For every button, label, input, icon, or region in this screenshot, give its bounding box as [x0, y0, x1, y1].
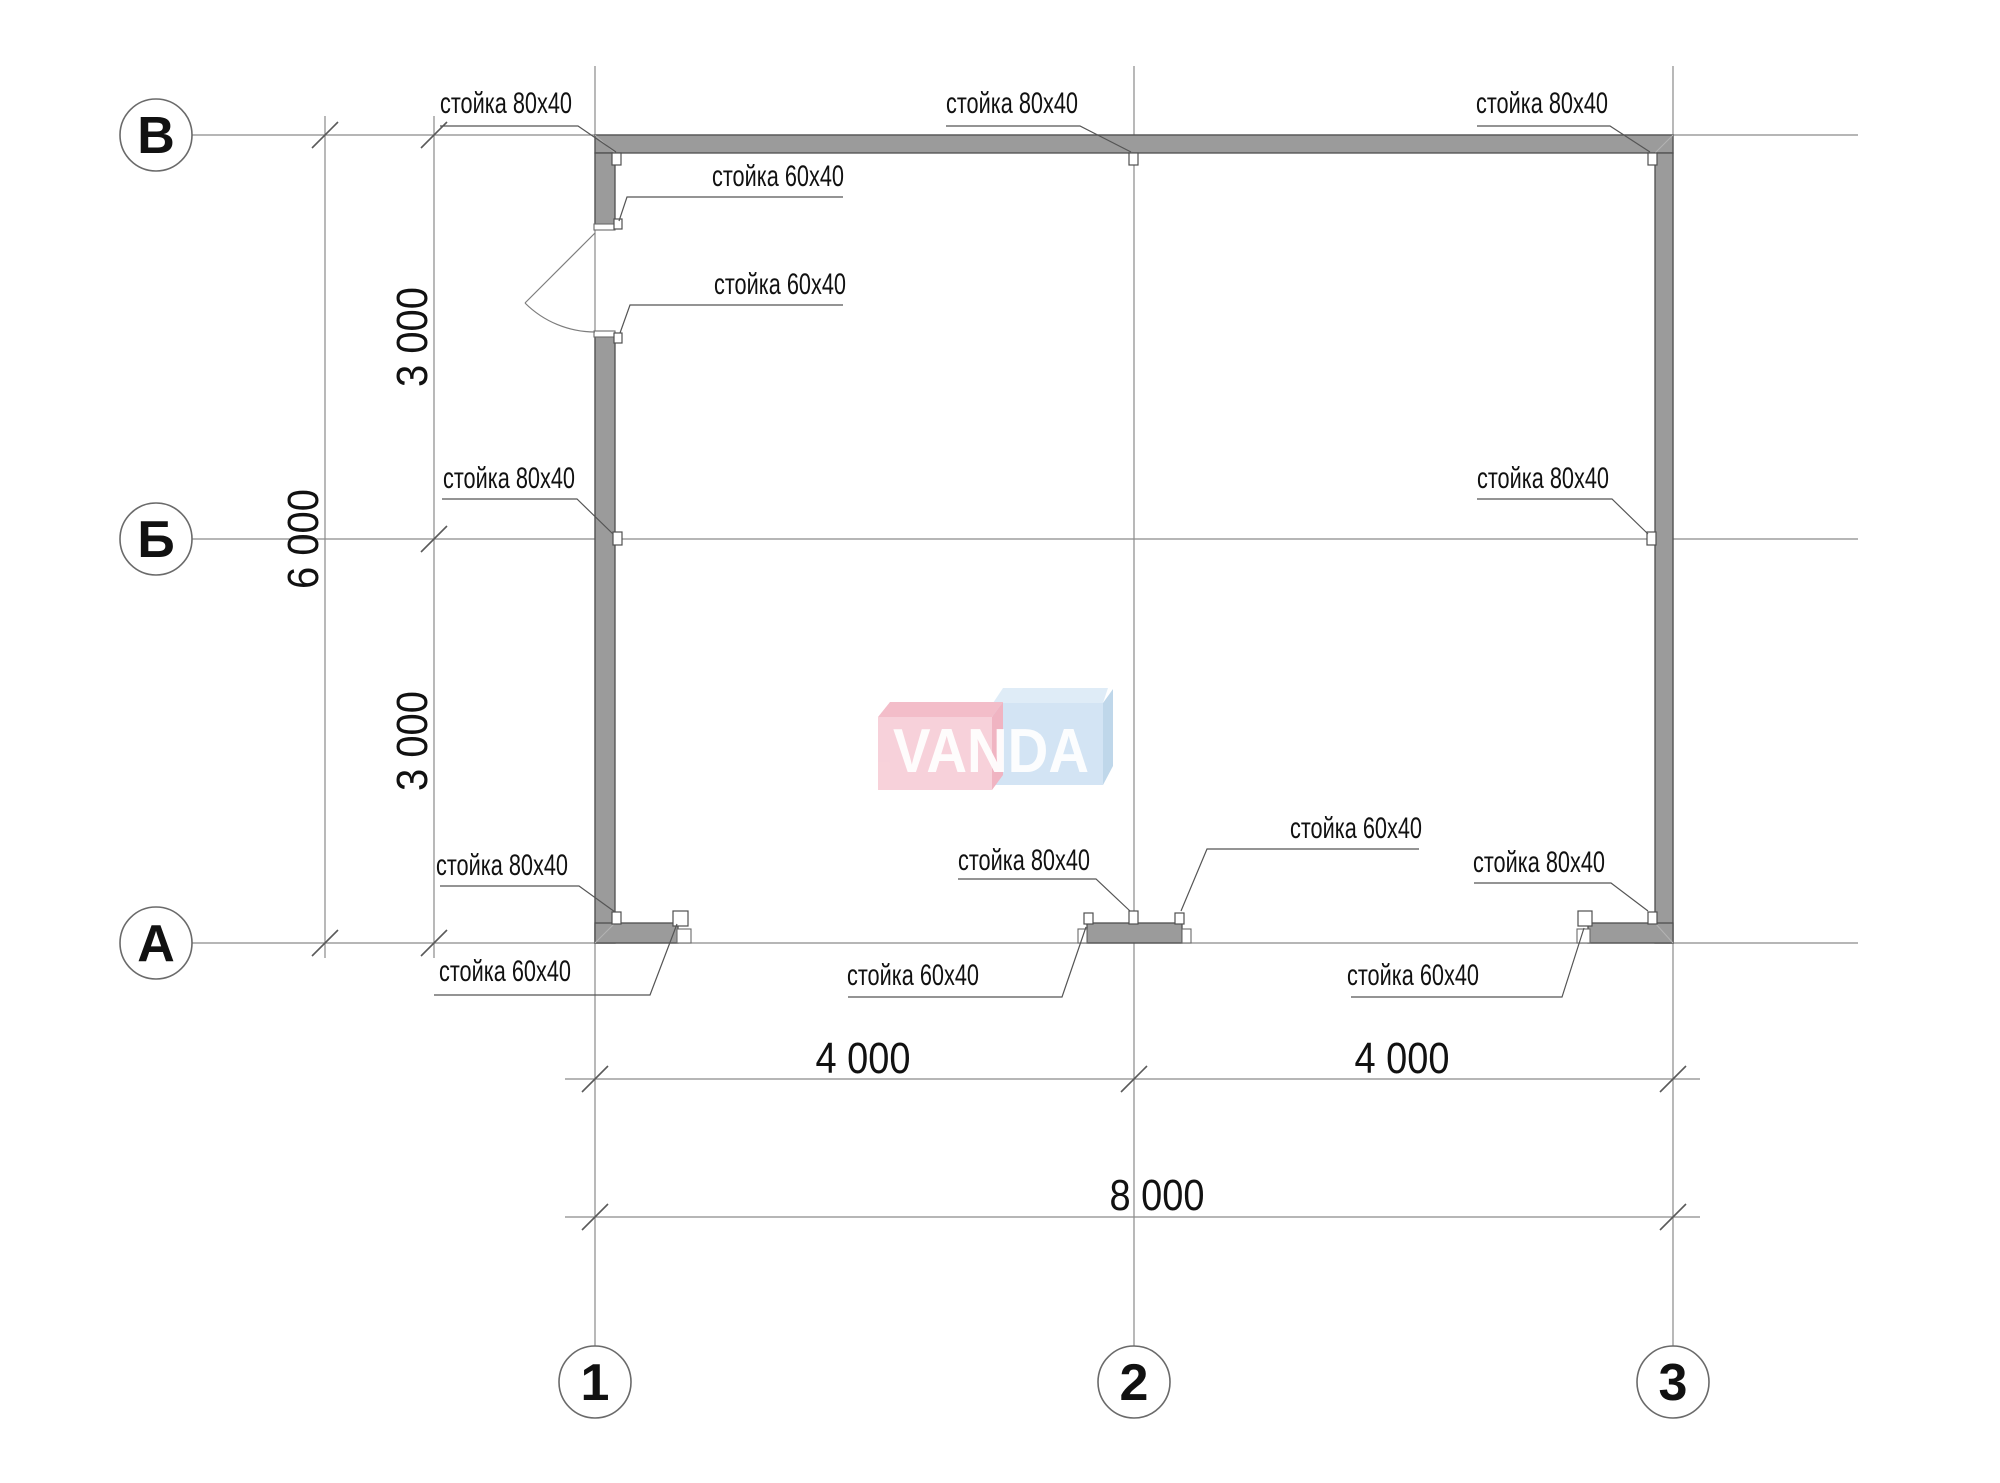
leader-line [440, 126, 616, 152]
post-label: стойка 80x40 [946, 87, 1078, 120]
post-label: стойка 60x40 [712, 160, 844, 193]
watermark-logo: VANDA [878, 688, 1113, 790]
opening-caps [594, 224, 1590, 943]
post-marker-axis-b-left [613, 532, 622, 545]
wall-right [1655, 153, 1673, 943]
post-marker-door-lower [614, 333, 622, 343]
dim-text-3000-lower: 3 000 [388, 691, 437, 791]
dim-text-4000-right: 4 000 [1355, 1034, 1450, 1083]
floor-plan-drawing: стойка 80x40 стойка 80x40 стойка 80x40 с… [0, 0, 2000, 1483]
dimension-lines [312, 116, 1700, 1230]
leader-line [1474, 883, 1648, 911]
wall-bottom-right-stub [1588, 923, 1673, 943]
dim-text-4000-left: 4 000 [816, 1034, 911, 1083]
wall-top [595, 135, 1673, 153]
dimension-ticks [312, 122, 1686, 1230]
post-label: стойка 60x40 [847, 959, 979, 992]
post-label: стойка 80x40 [436, 849, 568, 882]
dimension-texts: 3 000 3 000 6 000 4 000 4 000 8 000 [279, 287, 1450, 1220]
door-lower-sill [594, 331, 615, 337]
post-label: стойка 60x40 [439, 955, 571, 988]
logo-blue-box-side [1103, 689, 1113, 785]
leader-line [442, 499, 613, 534]
wall-left-lower [595, 333, 615, 943]
post-marker-bottom-right-corner [1648, 912, 1657, 924]
logo-text: VANDA [893, 717, 1089, 786]
axis-bubble-label: А [137, 915, 175, 973]
leader-line [1477, 499, 1648, 534]
post-marker-door-upper [614, 219, 622, 229]
leader-line [619, 197, 843, 221]
dim-text-6000: 6 000 [279, 489, 328, 589]
wall-bottom-left-stub [595, 923, 678, 943]
logo-pink-box-top [878, 702, 1003, 717]
door-arc [525, 303, 595, 332]
post-marker-mid-center [1129, 911, 1138, 924]
dim-text-8000: 8 000 [1110, 1171, 1205, 1220]
post-marker-top-center [1129, 153, 1138, 165]
post-marker-bottom-left-corner [612, 912, 621, 924]
post-marker-bottom-left-end [673, 911, 688, 926]
wall-bottom-middle [1087, 923, 1182, 943]
logo-blue-box-top [993, 688, 1108, 703]
post-label: стойка 60x40 [714, 268, 846, 301]
axis-bubble-label: 3 [1659, 1354, 1688, 1412]
door-swing [525, 233, 595, 332]
post-marker-mid-right [1175, 913, 1184, 924]
post-marker-top-left [612, 153, 621, 165]
axis-bubble-label: Б [137, 511, 174, 569]
post-label: стойка 80x40 [958, 844, 1090, 877]
post-marker-bottom-right-end [1578, 911, 1592, 926]
axis-bubble-label: В [137, 107, 175, 165]
post-marker-axis-b-right [1647, 532, 1656, 545]
dim-text-3000-upper: 3 000 [388, 287, 437, 387]
post-label: стойка 80x40 [1473, 846, 1605, 879]
floor-plan-page: стойка 80x40 стойка 80x40 стойка 80x40 с… [0, 0, 2000, 1483]
post-label: стойка 60x40 [1347, 959, 1479, 992]
door-upper-sill [594, 224, 615, 230]
post-label: стойка 60x40 [1290, 812, 1422, 845]
axis-bubble-label: 2 [1120, 1354, 1149, 1412]
leader-line [620, 305, 843, 333]
door-leaf [525, 233, 595, 303]
axis-bubble-label: 1 [581, 1354, 610, 1412]
leader-line [1181, 849, 1419, 911]
post-label: стойка 80x40 [1476, 87, 1608, 120]
post-marker-top-right [1648, 153, 1657, 165]
opening-step [1182, 929, 1191, 943]
post-marker-mid-left [1084, 913, 1093, 924]
post-label: стойка 80x40 [440, 87, 572, 120]
opening-step [677, 929, 691, 943]
leader-line [440, 886, 615, 912]
post-label: стойка 80x40 [443, 462, 575, 495]
post-label: стойка 80x40 [1477, 462, 1609, 495]
leader-line [958, 879, 1130, 911]
